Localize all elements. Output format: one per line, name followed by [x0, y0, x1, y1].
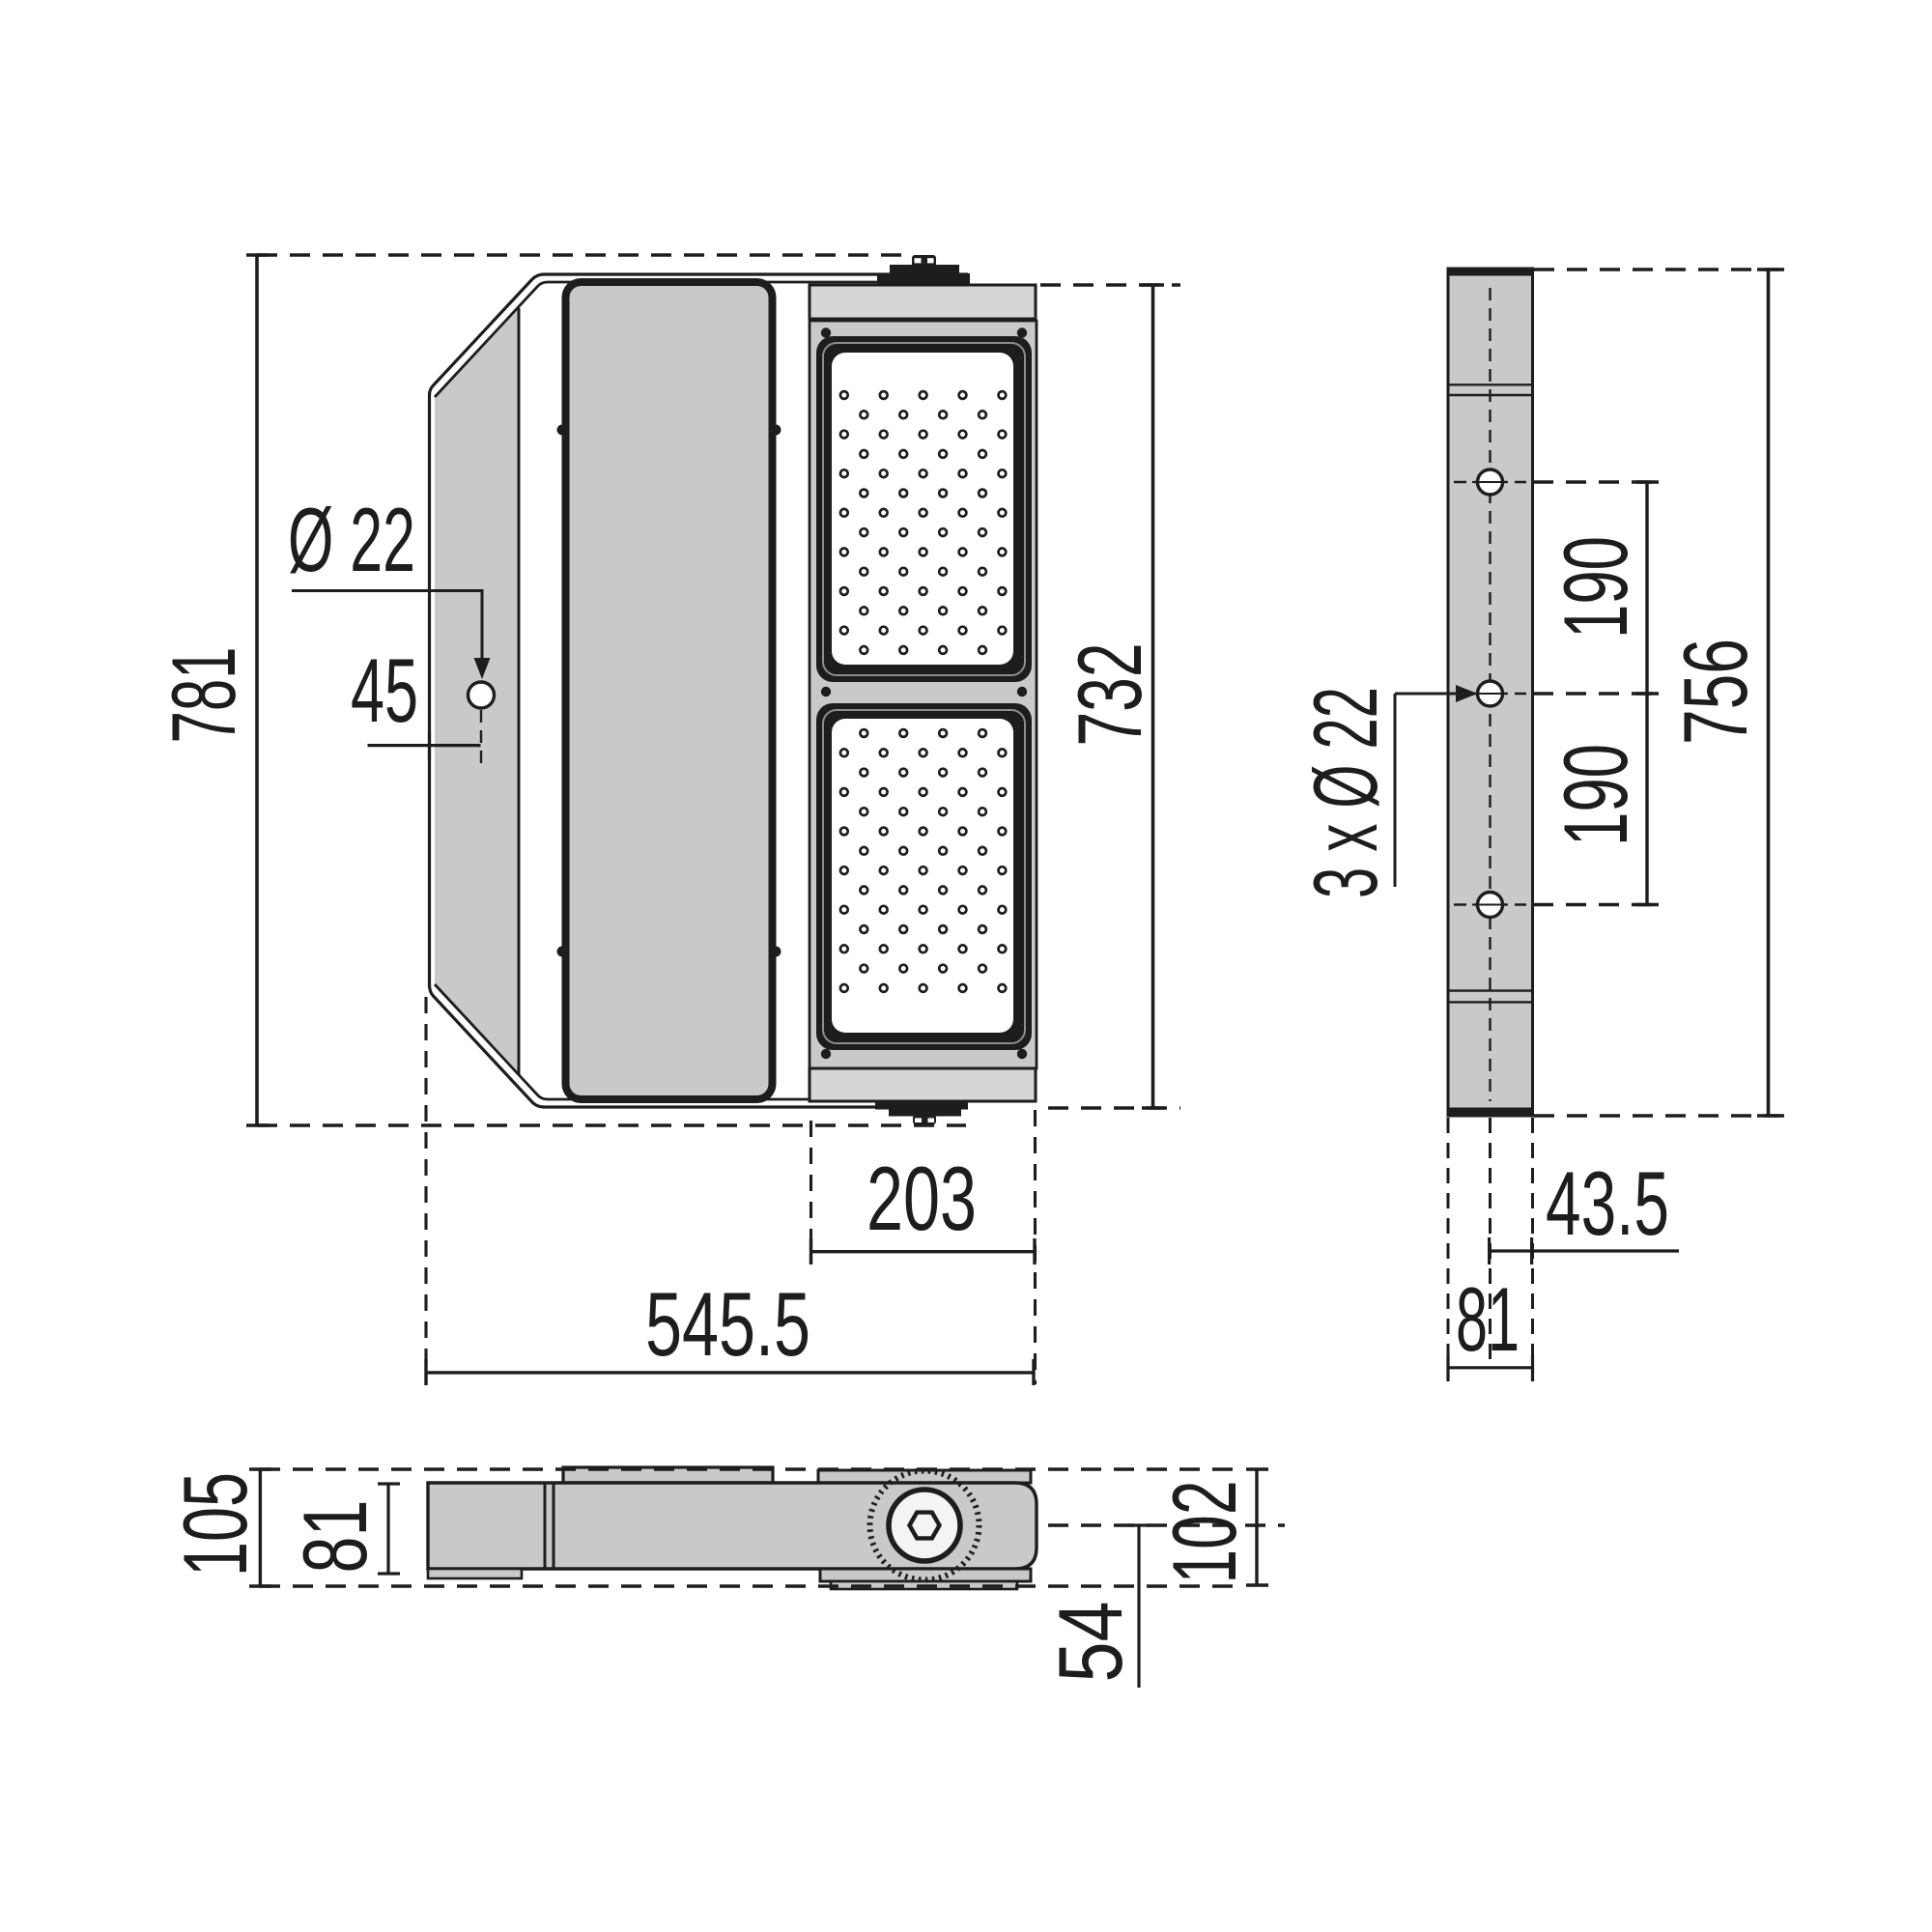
svg-text:756: 756 — [1664, 639, 1766, 745]
svg-text:203: 203 — [867, 1148, 977, 1249]
svg-text:54: 54 — [1039, 1602, 1141, 1683]
svg-text:781: 781 — [153, 647, 254, 744]
svg-text:81: 81 — [1456, 1268, 1520, 1370]
svg-text:105: 105 — [164, 1472, 266, 1577]
svg-text:190: 190 — [1545, 744, 1646, 846]
svg-text:3 x Ø 22: 3 x Ø 22 — [1294, 687, 1396, 898]
svg-text:45: 45 — [351, 639, 418, 741]
svg-text:190: 190 — [1545, 536, 1646, 639]
svg-text:545.5: 545.5 — [645, 1273, 810, 1375]
svg-text:43.5: 43.5 — [1546, 1152, 1669, 1254]
svg-text:81: 81 — [284, 1500, 385, 1574]
svg-text:102: 102 — [1153, 1481, 1255, 1584]
svg-text:Ø 22: Ø 22 — [288, 489, 415, 590]
svg-text:732: 732 — [1059, 643, 1160, 747]
